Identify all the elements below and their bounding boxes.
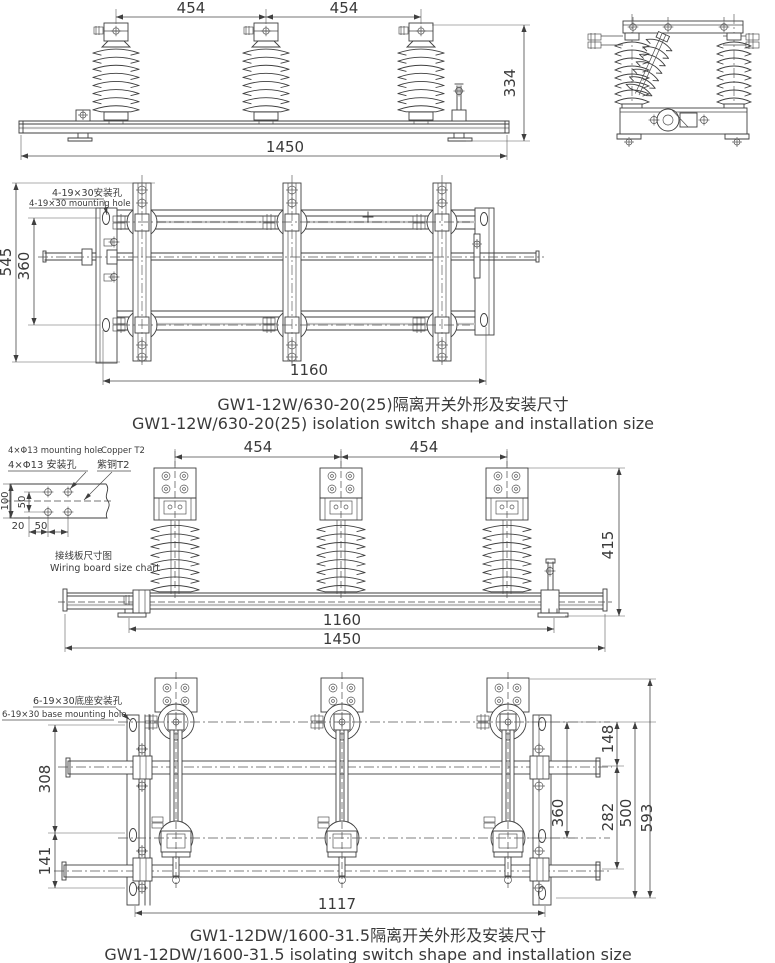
copper-note-zh: 紫铜T2 <box>97 459 129 471</box>
caption-gw1-12w-en: GW1-12W/630-20(25) isolation switch shap… <box>132 414 654 433</box>
dim-1160-label: 1160 <box>290 361 328 379</box>
dim-1117-label: 1117 <box>318 895 356 913</box>
dim-454-left-label: 454 <box>177 0 206 17</box>
mid-dim-415-label: 415 <box>599 531 617 560</box>
dim-454-right-label: 454 <box>330 0 359 17</box>
isolation-switch-outline-drawing: 454 454 334 1450 545 360 1160 4-19×30安装孔… <box>0 0 775 963</box>
mid-dim-1450-label: 1450 <box>323 630 361 648</box>
base-hole-note-zh: 6-19×30底座安装孔 <box>33 695 123 707</box>
dim-1450-label: 1450 <box>266 138 304 156</box>
dim-500-label: 500 <box>617 799 635 828</box>
dim-545-label: 545 <box>0 248 15 277</box>
dim-148-label: 148 <box>599 725 617 754</box>
wiring-dim-100-label: 100 <box>0 491 11 510</box>
base-hole-note-en: 6-19×30 base mounting hole <box>2 710 127 720</box>
mounting-hole-note-zh: 4-19×30安装孔 <box>52 187 123 199</box>
dim-334-label: 334 <box>501 69 519 98</box>
mounting-hole-note-en: 4-19×30 mounting hole <box>29 199 131 209</box>
caption-gw1-12w-zh: GW1-12W/630-20(25)隔离开关外形及安装尺寸 <box>217 395 568 414</box>
wiring-dim-50v-label: 50 <box>17 496 28 509</box>
caption-gw1-12dw-zh: GW1-12DW/1600-31.5隔离开关外形及安装尺寸 <box>190 926 546 945</box>
caption-gw1-12dw-en: GW1-12DW/1600-31.5 isolating switch shap… <box>104 945 631 963</box>
copper-note-en: Copper T2 <box>101 446 145 456</box>
dim-360-bottom-label: 360 <box>549 799 567 828</box>
dim-308-label: 308 <box>36 765 54 794</box>
dim-141-label: 141 <box>36 847 54 876</box>
mid-dim-1160-label: 1160 <box>323 611 361 629</box>
dim-360-label: 360 <box>15 252 33 281</box>
dim-593-label: 593 <box>638 804 656 833</box>
mid-dim-454-left-label: 454 <box>244 438 273 456</box>
wiring-hole-note-zh: 4×Φ13 安装孔 <box>8 458 77 471</box>
wiring-hole-note-en: 4×Φ13 mounting hole <box>8 446 102 456</box>
dim-282-label: 282 <box>599 803 617 832</box>
drawing-sheet: 454 454 334 1450 545 360 1160 4-19×30安装孔… <box>0 0 775 963</box>
side-view-gw1-12w <box>588 14 759 147</box>
wiring-caption-zh: 接线板尺寸图 <box>55 550 112 562</box>
wiring-dim-20-label: 20 <box>12 521 25 532</box>
plan-view-gw1-12dw <box>2 672 656 917</box>
mid-dim-454-right-label: 454 <box>410 438 439 456</box>
wiring-dim-50h-label: 50 <box>35 521 48 532</box>
wiring-caption-en: Wiring board size chart <box>50 563 160 574</box>
